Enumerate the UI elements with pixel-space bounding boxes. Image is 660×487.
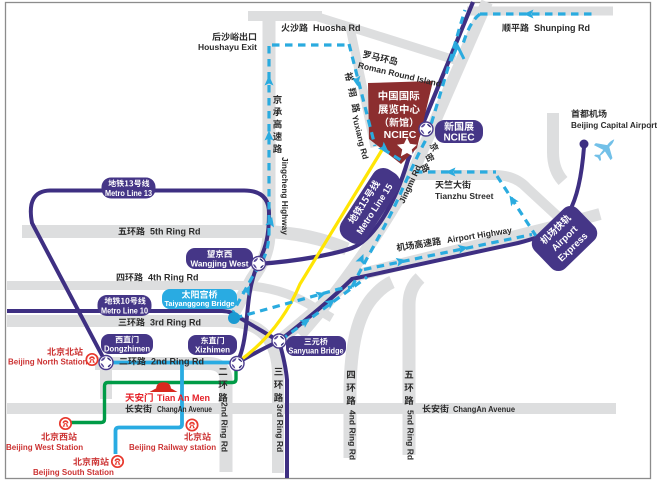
svg-text:3rd Ring Rd: 3rd Ring Rd bbox=[275, 404, 285, 452]
svg-text:5th Ring Rd: 5th Ring Rd bbox=[150, 227, 201, 237]
svg-text:Dongzhimen: Dongzhimen bbox=[104, 345, 150, 354]
svg-text:Metro Line 13: Metro Line 13 bbox=[105, 189, 153, 198]
svg-text:Beijing Railway station: Beijing Railway station bbox=[129, 443, 216, 452]
svg-text:4nd Ring Rd: 4nd Ring Rd bbox=[348, 410, 358, 460]
svg-text:Taiyanggong Bridge: Taiyanggong Bridge bbox=[165, 299, 235, 308]
svg-text:Sanyuan Bridge: Sanyuan Bridge bbox=[289, 347, 344, 356]
svg-text:Jingcheng Highway: Jingcheng Highway bbox=[280, 157, 290, 235]
svg-text:Wangjing West: Wangjing West bbox=[191, 260, 249, 269]
svg-text:ChangAn Avenue: ChangAn Avenue bbox=[453, 404, 515, 414]
svg-text:Beijing Capital Airport: Beijing Capital Airport bbox=[571, 121, 657, 130]
svg-text:Beijing North Station: Beijing North Station bbox=[8, 358, 88, 367]
svg-text:Tian An Men: Tian An Men bbox=[157, 393, 210, 403]
svg-text:NCIEC: NCIEC bbox=[443, 133, 474, 144]
svg-text:Huosha Rd: Huosha Rd bbox=[313, 23, 361, 33]
svg-text:Beijing West Station: Beijing West Station bbox=[6, 443, 83, 452]
svg-text:Xizhimen: Xizhimen bbox=[195, 346, 230, 355]
svg-text:ChangAn Avenue: ChangAn Avenue bbox=[157, 404, 212, 414]
svg-text:Metro Line 10: Metro Line 10 bbox=[101, 306, 149, 315]
svg-text:Shunping Rd: Shunping Rd bbox=[534, 23, 590, 33]
svg-text:2nd Ring Rd: 2nd Ring Rd bbox=[220, 402, 230, 452]
svg-text:2nd Ring Rd: 2nd Ring Rd bbox=[151, 357, 204, 367]
svg-text:Beijing South Station: Beijing South Station bbox=[33, 468, 114, 477]
svg-text:Houshayu Exit: Houshayu Exit bbox=[198, 42, 257, 52]
svg-text:5nd Ring Rd: 5nd Ring Rd bbox=[406, 410, 416, 460]
svg-text:Tianzhu Street: Tianzhu Street bbox=[435, 191, 494, 201]
svg-text:4th Ring Rd: 4th Ring Rd bbox=[148, 273, 199, 283]
svg-text:3rd Ring Rd: 3rd Ring Rd bbox=[150, 318, 201, 328]
svg-text:NCIEC: NCIEC bbox=[384, 129, 417, 141]
